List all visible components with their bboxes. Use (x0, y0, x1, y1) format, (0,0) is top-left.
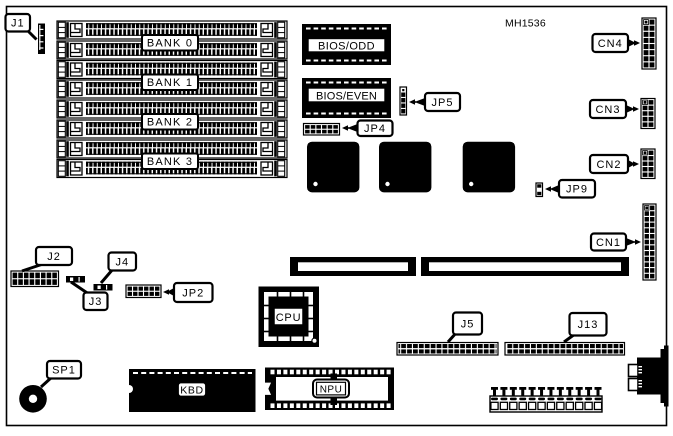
svg-text:NPU: NPU (320, 385, 343, 396)
svg-text:BIOS/ODD: BIOS/ODD (318, 41, 375, 53)
svg-text:CPU: CPU (276, 312, 302, 324)
svg-text:MH1536: MH1536 (505, 18, 546, 30)
svg-text:CN4: CN4 (598, 38, 623, 50)
svg-text:J3: J3 (89, 296, 103, 308)
svg-text:SP1: SP1 (52, 365, 76, 377)
svg-text:BANK 0: BANK 0 (147, 38, 193, 50)
svg-text:BANK 3: BANK 3 (147, 156, 193, 168)
svg-text:CN3: CN3 (595, 104, 620, 116)
svg-text:CN1: CN1 (596, 237, 621, 249)
svg-text:CN2: CN2 (596, 159, 621, 171)
svg-text:J5: J5 (461, 318, 475, 330)
svg-text:JP2: JP2 (182, 287, 204, 299)
svg-text:J4: J4 (115, 256, 129, 268)
svg-text:J1: J1 (11, 18, 25, 30)
svg-text:BANK 1: BANK 1 (147, 77, 193, 89)
svg-text:J2: J2 (47, 251, 61, 263)
svg-text:BANK 2: BANK 2 (147, 117, 193, 129)
svg-text:BIOS/EVEN: BIOS/EVEN (316, 90, 377, 102)
svg-text:KBD: KBD (180, 385, 203, 397)
svg-text:JP9: JP9 (566, 184, 588, 196)
svg-text:J13: J13 (578, 319, 599, 331)
svg-text:JP5: JP5 (432, 97, 454, 109)
svg-text:JP4: JP4 (364, 123, 386, 135)
